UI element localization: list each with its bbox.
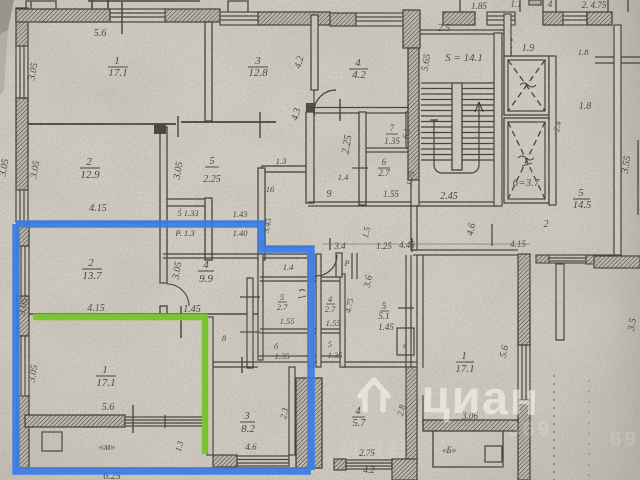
svg-text:циан: циан — [421, 369, 541, 425]
svg-text:иан: иан — [340, 428, 412, 466]
svg-text:69: 69 — [610, 428, 639, 451]
